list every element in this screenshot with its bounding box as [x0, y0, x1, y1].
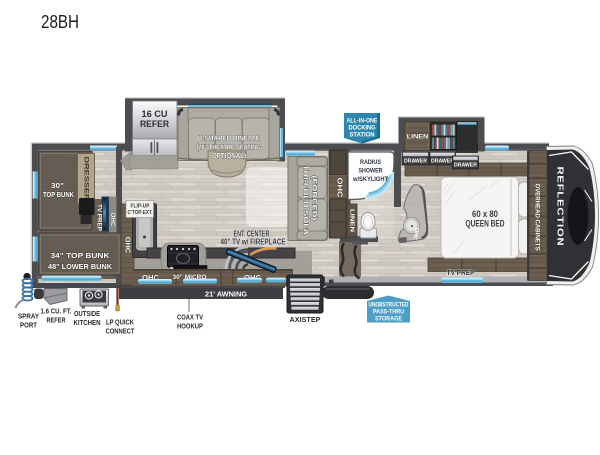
- svg-text:DOCKING: DOCKING: [349, 125, 376, 132]
- svg-text:PASS-THRU: PASS-THRU: [373, 309, 404, 316]
- svg-text:REFLECTION: REFLECTION: [556, 167, 566, 247]
- svg-text:DRAWER: DRAWER: [404, 158, 428, 164]
- svg-text:34" TOP BUNK: 34" TOP BUNK: [51, 251, 111, 260]
- svg-text:ALL-IN-ONE: ALL-IN-ONE: [347, 118, 378, 125]
- svg-text:SHOWER: SHOWER: [359, 168, 383, 175]
- svg-text:U-SHAPED DINETTE: U-SHAPED DINETTE: [198, 134, 260, 143]
- svg-text:UNOBSTRUCTED: UNOBSTRUCTED: [369, 302, 409, 309]
- svg-text:QUEEN BED: QUEEN BED: [466, 219, 505, 229]
- svg-text:C'TOP EXT.: C'TOP EXT.: [128, 210, 154, 216]
- svg-text:OHC: OHC: [336, 178, 345, 199]
- svg-text:FLIP-UP: FLIP-UP: [131, 204, 151, 210]
- svg-text:COAX TV: COAX TV: [177, 315, 203, 322]
- svg-text:OPTIONAL): OPTIONAL): [212, 153, 246, 160]
- svg-text:28BH: 28BH: [41, 12, 79, 32]
- svg-text:(78" THEATRE SEATING: (78" THEATRE SEATING: [197, 145, 261, 152]
- svg-text:DRAWER: DRAWER: [454, 162, 478, 168]
- svg-text:TV PREP: TV PREP: [447, 270, 475, 277]
- svg-text:AXISTEP: AXISTEP: [290, 317, 321, 324]
- svg-text:LP QUICK: LP QUICK: [106, 320, 134, 327]
- svg-text:OHC: OHC: [109, 213, 116, 228]
- svg-text:KITCHEN: KITCHEN: [74, 320, 101, 327]
- svg-text:STORAGE: STORAGE: [375, 316, 402, 323]
- svg-text:DRESSER: DRESSER: [83, 157, 90, 202]
- svg-text:OUTSIDE: OUTSIDE: [74, 311, 100, 318]
- svg-text:RADIUS: RADIUS: [360, 159, 381, 166]
- svg-text:STATION: STATION: [350, 132, 375, 139]
- svg-text:LINEN: LINEN: [349, 209, 355, 232]
- svg-text:REFER: REFER: [140, 119, 169, 130]
- svg-text:OHC: OHC: [124, 237, 131, 254]
- svg-text:1.6 CU. FT.: 1.6 CU. FT.: [41, 309, 72, 316]
- svg-text:TRI-FOLD SOFA: TRI-FOLD SOFA: [302, 165, 311, 235]
- svg-text:(FORCED): (FORCED): [311, 176, 318, 221]
- svg-text:w/SKYLIGHT: w/SKYLIGHT: [352, 176, 388, 183]
- svg-text:21' AWNING: 21' AWNING: [205, 290, 247, 299]
- svg-text:TV PREP: TV PREP: [96, 204, 103, 232]
- svg-text:DRAWER: DRAWER: [431, 158, 455, 164]
- svg-text:30": 30": [51, 181, 64, 190]
- svg-text:48" LOWER BUNK: 48" LOWER BUNK: [48, 262, 113, 271]
- svg-text:PORT: PORT: [20, 323, 38, 330]
- svg-text:HOOKUP: HOOKUP: [177, 324, 203, 331]
- svg-text:OVERHEAD CABINETS: OVERHEAD CABINETS: [534, 184, 541, 252]
- svg-text:40" TV w/ FIREPLACE: 40" TV w/ FIREPLACE: [221, 238, 286, 247]
- svg-text:60 x 80: 60 x 80: [472, 209, 498, 219]
- svg-text:CONNECT: CONNECT: [106, 329, 136, 336]
- svg-text:SPRAY: SPRAY: [18, 314, 39, 321]
- svg-text:LINEN: LINEN: [407, 134, 429, 141]
- svg-text:TOP BUNK: TOP BUNK: [43, 190, 75, 199]
- svg-text:REFER: REFER: [47, 318, 66, 325]
